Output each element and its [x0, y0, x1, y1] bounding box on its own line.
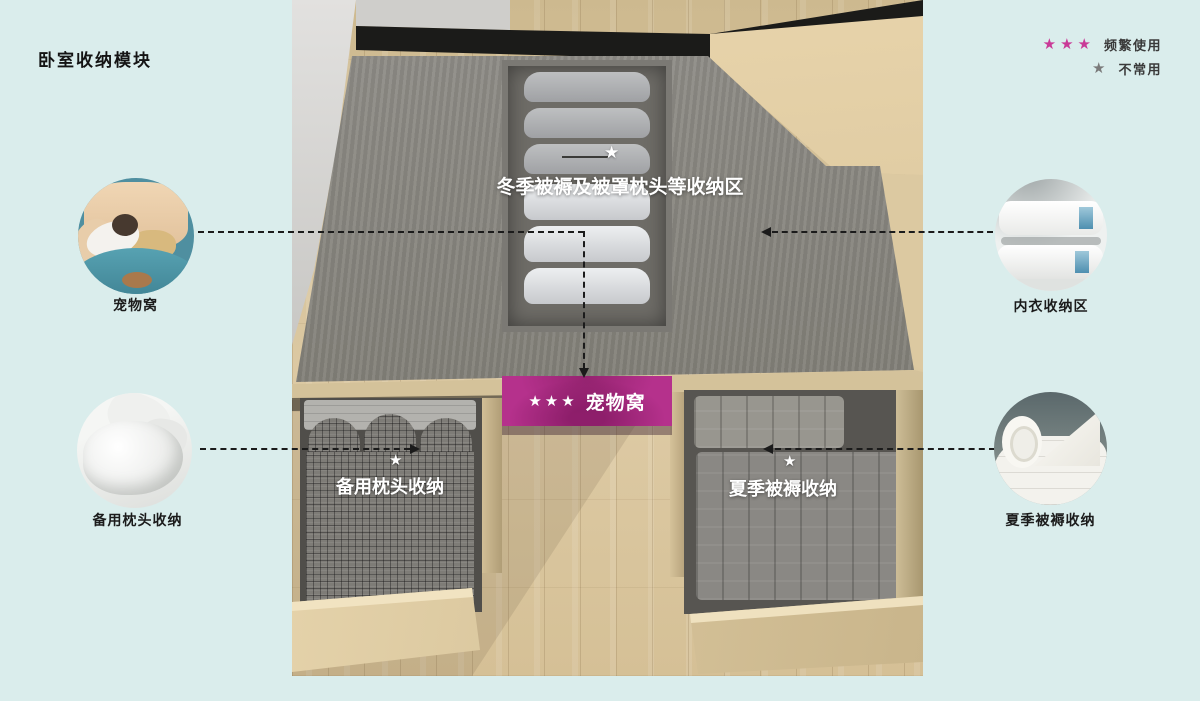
rare-star-icon: ★ — [1092, 61, 1109, 76]
pet-bowl-spot — [122, 272, 152, 288]
pillow-tag — [1075, 251, 1089, 273]
summer-star-icon: ★ — [783, 452, 796, 470]
spare-star-icon: ★ — [389, 451, 402, 469]
bedroom-storage-infographic: 卧室收纳模块 ★★★ 频繁使用 ★ 不常用 — [0, 0, 1200, 701]
pet-bed-photo — [78, 178, 194, 294]
pet-nest-highlight-box: ★★★ 宠物窝 — [502, 376, 672, 426]
pillow — [524, 108, 650, 138]
spare-leader-arrow-icon — [410, 444, 420, 454]
page-title: 卧室收纳模块 — [38, 46, 152, 71]
stacked-pillows-photo — [995, 179, 1107, 291]
rolled-quilt-photo — [994, 392, 1107, 505]
frequent-stars-icon: ★★★ — [1043, 37, 1095, 52]
dog-head — [112, 214, 138, 236]
pillow-front — [83, 421, 183, 495]
legend: ★★★ 频繁使用 ★ 不常用 — [1020, 32, 1162, 80]
summer-leader-line — [775, 448, 995, 450]
underwear-callout-label: 内衣收纳区 — [965, 296, 1137, 316]
spare-pillows-label: 备用枕头收纳 — [305, 473, 475, 499]
underwear-leader-arrow-icon — [761, 227, 771, 237]
right-drawer-cavity — [684, 390, 923, 614]
winter-pointer-line — [562, 156, 608, 158]
pet-leader-arrow-icon — [579, 368, 589, 378]
pet-box-shadow — [502, 426, 672, 435]
spare-leader-line — [200, 448, 410, 450]
wood-post — [480, 398, 502, 573]
pillow — [524, 144, 650, 174]
spare-pillows-callout-label: 备用枕头收纳 — [50, 510, 225, 530]
pet-box-stars-icon: ★★★ — [528, 392, 577, 410]
underwear-leader-line — [772, 231, 993, 233]
quilt-roll-spiral — [1010, 426, 1038, 462]
pillow — [524, 268, 650, 304]
room-photo: ★★★ 宠物窝 — [292, 0, 923, 676]
pet-leader-line-h — [198, 231, 584, 233]
winter-area-label: 冬季被褥及被罩枕头等收纳区 — [455, 172, 785, 199]
left-drawer-cavity — [300, 398, 482, 612]
drawer-side-wall — [896, 390, 923, 614]
pillow-stack-back — [508, 72, 666, 174]
white-pillow-photo — [77, 393, 192, 508]
summer-leader-arrow-icon — [763, 444, 773, 454]
legend-frequent-label: 频繁使用 — [1104, 35, 1162, 54]
pet-box-label: 宠物窝 — [586, 388, 646, 415]
legend-frequent-row: ★★★ 频繁使用 — [1020, 32, 1162, 56]
winter-star-icon: ★ — [604, 143, 619, 163]
pet-leader-line-v — [583, 231, 585, 369]
pet-nest-callout-label: 宠物窝 — [48, 295, 223, 315]
pillow — [524, 72, 650, 102]
legend-rare-row: ★ 不常用 — [1020, 56, 1162, 80]
stack-base — [995, 279, 1107, 291]
pillow-tag — [1079, 207, 1093, 229]
legend-rare-label: 不常用 — [1118, 59, 1162, 78]
summer-bedding-label: 夏季被褥收纳 — [698, 475, 868, 501]
summer-bedding-callout-label: 夏季被褥收纳 — [963, 510, 1138, 530]
gray-quilt — [694, 396, 844, 448]
stack-gap-shadow — [1001, 237, 1101, 245]
pillow-stack-front — [508, 184, 666, 304]
